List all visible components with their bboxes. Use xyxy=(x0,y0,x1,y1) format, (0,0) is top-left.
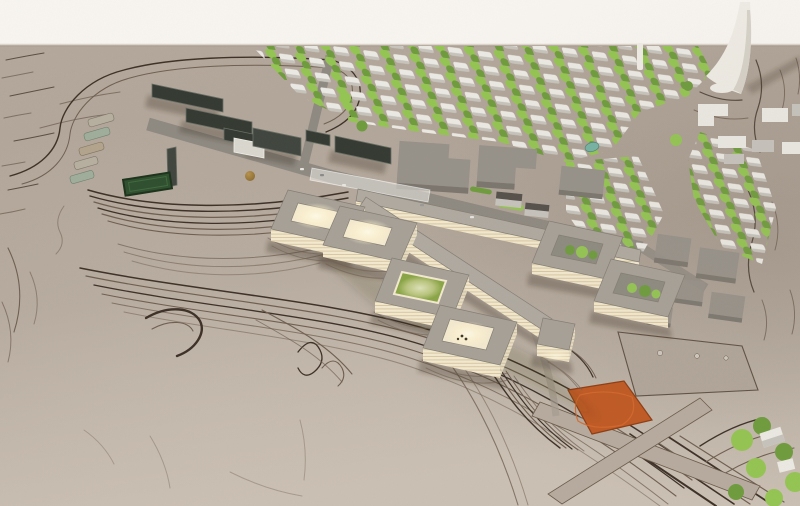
architectural-model-photo: Aerial photograph of an architectural sc… xyxy=(0,0,800,506)
model-photo-svg: Aerial photograph of an architectural sc… xyxy=(0,0,800,506)
photo-vignette xyxy=(0,0,800,506)
